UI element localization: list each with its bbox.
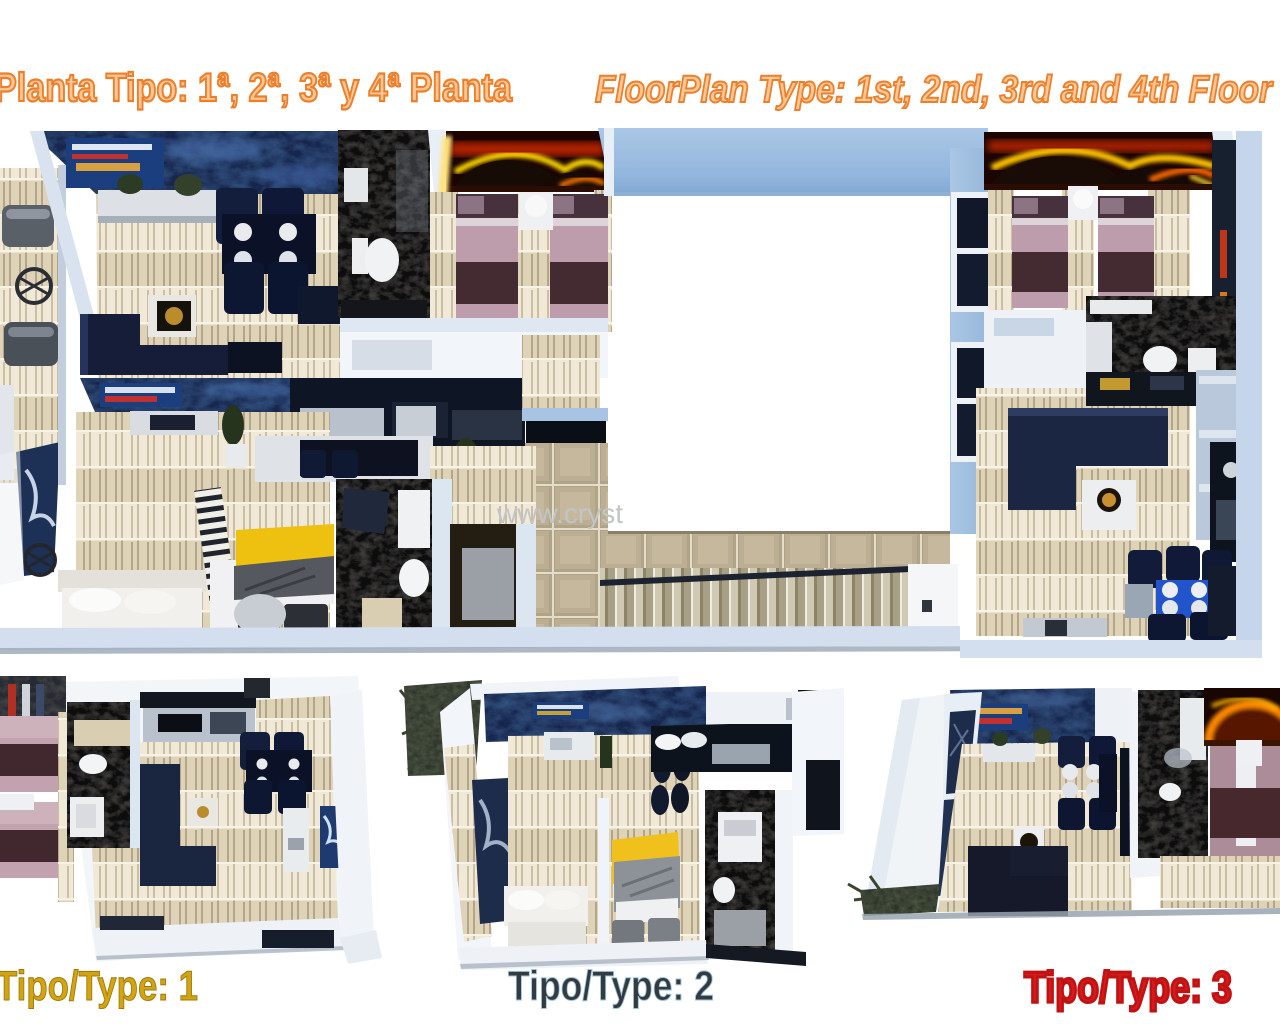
svg-text:www.cryst: www.cryst <box>496 498 623 529</box>
svg-text:FloorPlan Type: 1st, 2nd, 3rd: FloorPlan Type: 1st, 2nd, 3rd and 4th Fl… <box>595 69 1274 111</box>
svg-text:Tipo/Type: 3: Tipo/Type: 3 <box>1024 963 1232 1012</box>
svg-text:Planta Tipo: 1ª, 2ª, 3ª y 4ª P: Planta Tipo: 1ª, 2ª, 3ª y 4ª Planta <box>0 66 513 110</box>
svg-text:Tipo/Type: 1: Tipo/Type: 1 <box>0 962 198 1009</box>
svg-text:Tipo/Type: 2: Tipo/Type: 2 <box>508 962 714 1009</box>
